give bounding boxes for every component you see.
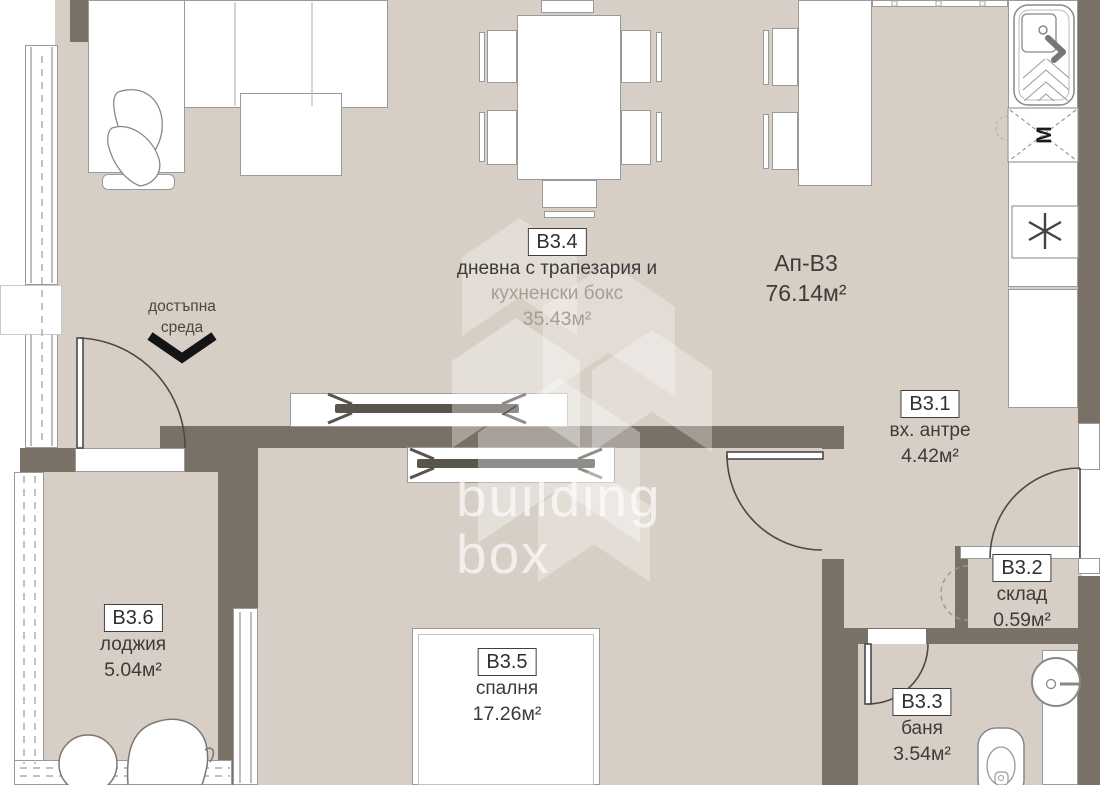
room-area-entry: 4.42м² bbox=[889, 443, 970, 469]
entrance-jamb-top bbox=[1078, 423, 1100, 470]
window-living-left-1 bbox=[25, 45, 58, 285]
dining-chair bbox=[621, 30, 651, 83]
dining-chair bbox=[542, 180, 597, 208]
dining-chair-back bbox=[479, 32, 485, 82]
kitchen-counter bbox=[1008, 0, 1078, 287]
room-label-entry: В3.1 вх. антре 4.42м² bbox=[889, 390, 970, 469]
bar-chair bbox=[772, 28, 798, 86]
dining-chair-back bbox=[479, 112, 485, 162]
bathroom-door-opening bbox=[868, 629, 926, 644]
dining-chair-back bbox=[656, 32, 662, 82]
kitchen-cabinet bbox=[1008, 289, 1078, 408]
kitchen-island bbox=[798, 0, 872, 186]
wall-loggia-right bbox=[218, 608, 233, 785]
dining-table bbox=[517, 15, 621, 180]
kitchen-upper-cabinets bbox=[872, 0, 1008, 7]
room-name-storage: склад bbox=[992, 582, 1051, 607]
room-code-loggia: В3.6 bbox=[103, 604, 162, 632]
room-name-bedroom: спалня bbox=[473, 676, 542, 701]
room-code-bath: В3.3 bbox=[892, 688, 951, 716]
room-label-bedroom: В3.5 спалня 17.26м² bbox=[473, 648, 542, 727]
sofa-ottoman bbox=[102, 174, 175, 190]
room-label-bath: В3.3 баня 3.54м² bbox=[892, 688, 951, 767]
room-label-loggia: В3.6 лоджия 5.04м² bbox=[100, 604, 166, 683]
window-loggia-bottom bbox=[14, 760, 232, 785]
room-code-storage: В3.2 bbox=[992, 554, 1051, 582]
accessibility-line-1: достъпна bbox=[148, 296, 216, 317]
wall-outer-right-top bbox=[1078, 0, 1100, 425]
entrance-door-opening bbox=[1078, 470, 1100, 558]
accessibility-line-2: среда bbox=[148, 317, 216, 338]
watermark-text-1: building bbox=[456, 470, 662, 525]
wall-bedroom-left bbox=[218, 448, 258, 608]
bedroom-door-opening bbox=[822, 449, 844, 559]
apartment-area: 76.14м² bbox=[765, 278, 846, 308]
window-loggia-left bbox=[14, 472, 44, 770]
dining-chair bbox=[487, 30, 517, 83]
room-name-entry: вх. антре bbox=[889, 418, 970, 443]
loggia-door-opening bbox=[75, 448, 185, 472]
sofa-vertical bbox=[88, 0, 185, 173]
room-code-bedroom: В3.5 bbox=[477, 648, 536, 676]
watermark-text-2: box bbox=[456, 527, 551, 582]
room-label-storage: В3.2 склад 0.59м² bbox=[992, 554, 1051, 633]
wall-bathroom-left bbox=[844, 644, 858, 785]
room-area-bedroom: 17.26м² bbox=[473, 701, 542, 727]
room-area-bath: 3.54м² bbox=[892, 741, 951, 767]
room-name-bath: баня bbox=[892, 716, 951, 741]
room-name-loggia: лоджия bbox=[100, 632, 166, 657]
entrance-jamb-bottom bbox=[1078, 558, 1100, 574]
bathroom-counter bbox=[1042, 650, 1078, 785]
dining-chair bbox=[487, 110, 517, 165]
coffee-table bbox=[240, 93, 342, 176]
room-area-loggia: 5.04м² bbox=[100, 657, 166, 683]
dining-chair bbox=[541, 0, 594, 13]
room-name-living-2: кухненски бокс bbox=[457, 281, 657, 306]
room-label-living: В3.4 дневна с трапезария и кухненски бок… bbox=[457, 228, 657, 332]
accessibility-note: достъпна среда bbox=[148, 296, 216, 338]
room-code-living: В3.4 bbox=[527, 228, 586, 256]
dining-chair bbox=[621, 110, 651, 165]
wall-outer-right-bottom bbox=[1078, 576, 1100, 785]
bar-chair bbox=[772, 112, 798, 170]
window-pier bbox=[0, 285, 62, 335]
window-bedroom-left bbox=[233, 608, 258, 785]
floor-plan: М bbox=[0, 0, 1113, 785]
room-name-living-1: дневна с трапезария и bbox=[457, 256, 657, 281]
dining-chair-back bbox=[656, 112, 662, 162]
bar-chair-back bbox=[763, 30, 769, 85]
dining-chair-back bbox=[544, 211, 595, 218]
room-area-storage: 0.59м² bbox=[992, 607, 1051, 633]
room-code-entry: В3.1 bbox=[900, 390, 959, 418]
apartment-label: Ап-В3 76.14м² bbox=[765, 248, 846, 308]
bar-chair-back bbox=[763, 114, 769, 169]
window-living-left-2 bbox=[25, 333, 58, 448]
apartment-code: Ап-В3 bbox=[765, 248, 846, 278]
room-area-living: 35.43м² bbox=[457, 306, 657, 332]
